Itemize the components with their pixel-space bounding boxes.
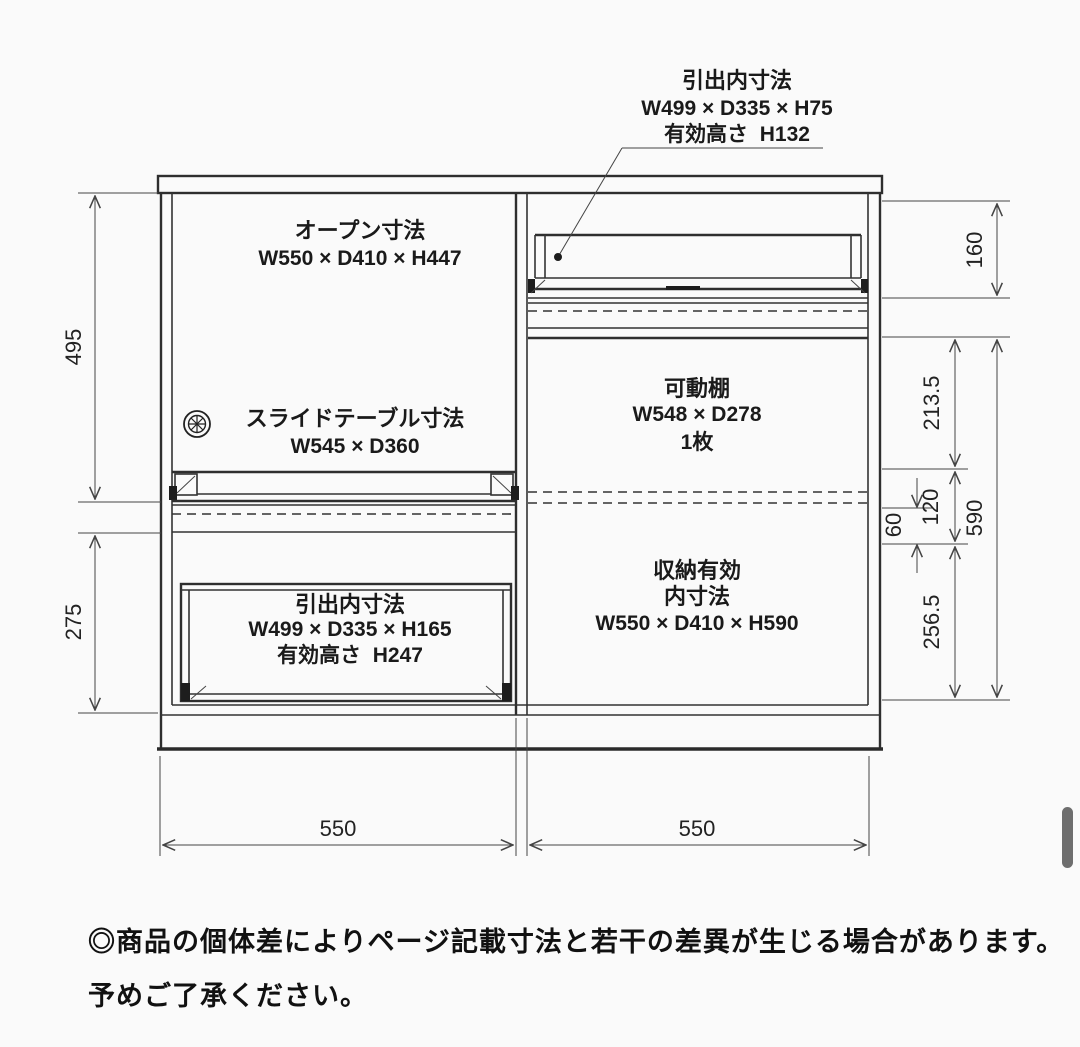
bottom-drawer-label: 引出内寸法 W499 × D335 × H165 有効高さ H247 <box>248 592 451 667</box>
storage-title-line1: 収納有効 <box>653 558 741 583</box>
slide-table <box>169 472 519 505</box>
movable-shelf-label: 可動棚 W548 × D278 1枚 <box>633 376 762 454</box>
dim-width-right: 550 <box>679 816 716 841</box>
dim-right-flap: 160 <box>962 232 987 269</box>
flap-drawer-box <box>528 235 868 293</box>
dim-left-lower: 275 <box>61 604 86 641</box>
storage-label: 収納有効 内寸法 W550 × D410 × H590 <box>595 558 798 635</box>
scrollbar-thumb[interactable] <box>1062 807 1073 868</box>
bottom-drawer-effective-height: 有効高さ H247 <box>277 643 423 667</box>
dim-right-total: 590 <box>962 500 987 537</box>
leader-line <box>554 148 823 261</box>
open-section-label: オープン寸法 W550 × D410 × H447 <box>258 218 461 270</box>
top-drawer-effective-height: 有効高さ H132 <box>664 122 810 146</box>
bottom-drawer-title: 引出内寸法 <box>295 592 405 617</box>
open-section-size: W550 × D410 × H447 <box>258 247 461 270</box>
dim-width-left: 550 <box>320 816 357 841</box>
top-drawer-size: W499 × D335 × H75 <box>641 97 833 120</box>
dim-right-upper: 213.5 <box>919 375 944 430</box>
furniture-dimension-diagram: 引出内寸法 W499 × D335 × H75 有効高さ H132 オープン寸法… <box>0 0 1080 1047</box>
dim-right-lower: 256.5 <box>919 594 944 649</box>
slide-table-label: スライドテーブル寸法 W545 × D360 <box>246 406 465 458</box>
movable-shelf-count: 1枚 <box>681 430 715 454</box>
knob-icon <box>184 411 210 437</box>
top-drawer-callout: 引出内寸法 W499 × D335 × H75 有効高さ H132 <box>554 68 833 261</box>
disclaimer-line-1: ◎商品の個体差によりページ記載寸法と若干の差異が生じる場合があります。 <box>88 920 1064 959</box>
left-dimensions: 495 275 <box>61 193 161 713</box>
dim-left-upper: 495 <box>61 329 86 366</box>
dim-right-step: 60 <box>881 513 906 537</box>
movable-shelf-title: 可動棚 <box>664 376 730 401</box>
top-drawer-title: 引出内寸法 <box>682 68 792 93</box>
slide-table-size: W545 × D360 <box>291 435 420 458</box>
bottom-drawer-size: W499 × D335 × H165 <box>248 618 451 641</box>
dim-right-pitch: 120 <box>918 489 943 526</box>
storage-size: W550 × D410 × H590 <box>595 612 798 635</box>
open-section-title: オープン寸法 <box>295 218 426 243</box>
flap-section-shelf <box>528 298 868 338</box>
movable-shelf-size: W548 × D278 <box>633 403 762 426</box>
dimension-drawing: 引出内寸法 W499 × D335 × H75 有効高さ H132 オープン寸法… <box>0 0 1080 1047</box>
bottom-dimensions: 550 550 <box>160 718 869 856</box>
right-dimensions: 160 213.5 120 60 256.5 590 <box>881 201 1010 700</box>
storage-title-line2: 内寸法 <box>664 584 730 609</box>
disclaimer-line-2: 予めご了承ください。 <box>88 974 368 1013</box>
slide-table-title: スライドテーブル寸法 <box>246 406 465 431</box>
movable-shelf-dashed-lines <box>528 492 868 503</box>
